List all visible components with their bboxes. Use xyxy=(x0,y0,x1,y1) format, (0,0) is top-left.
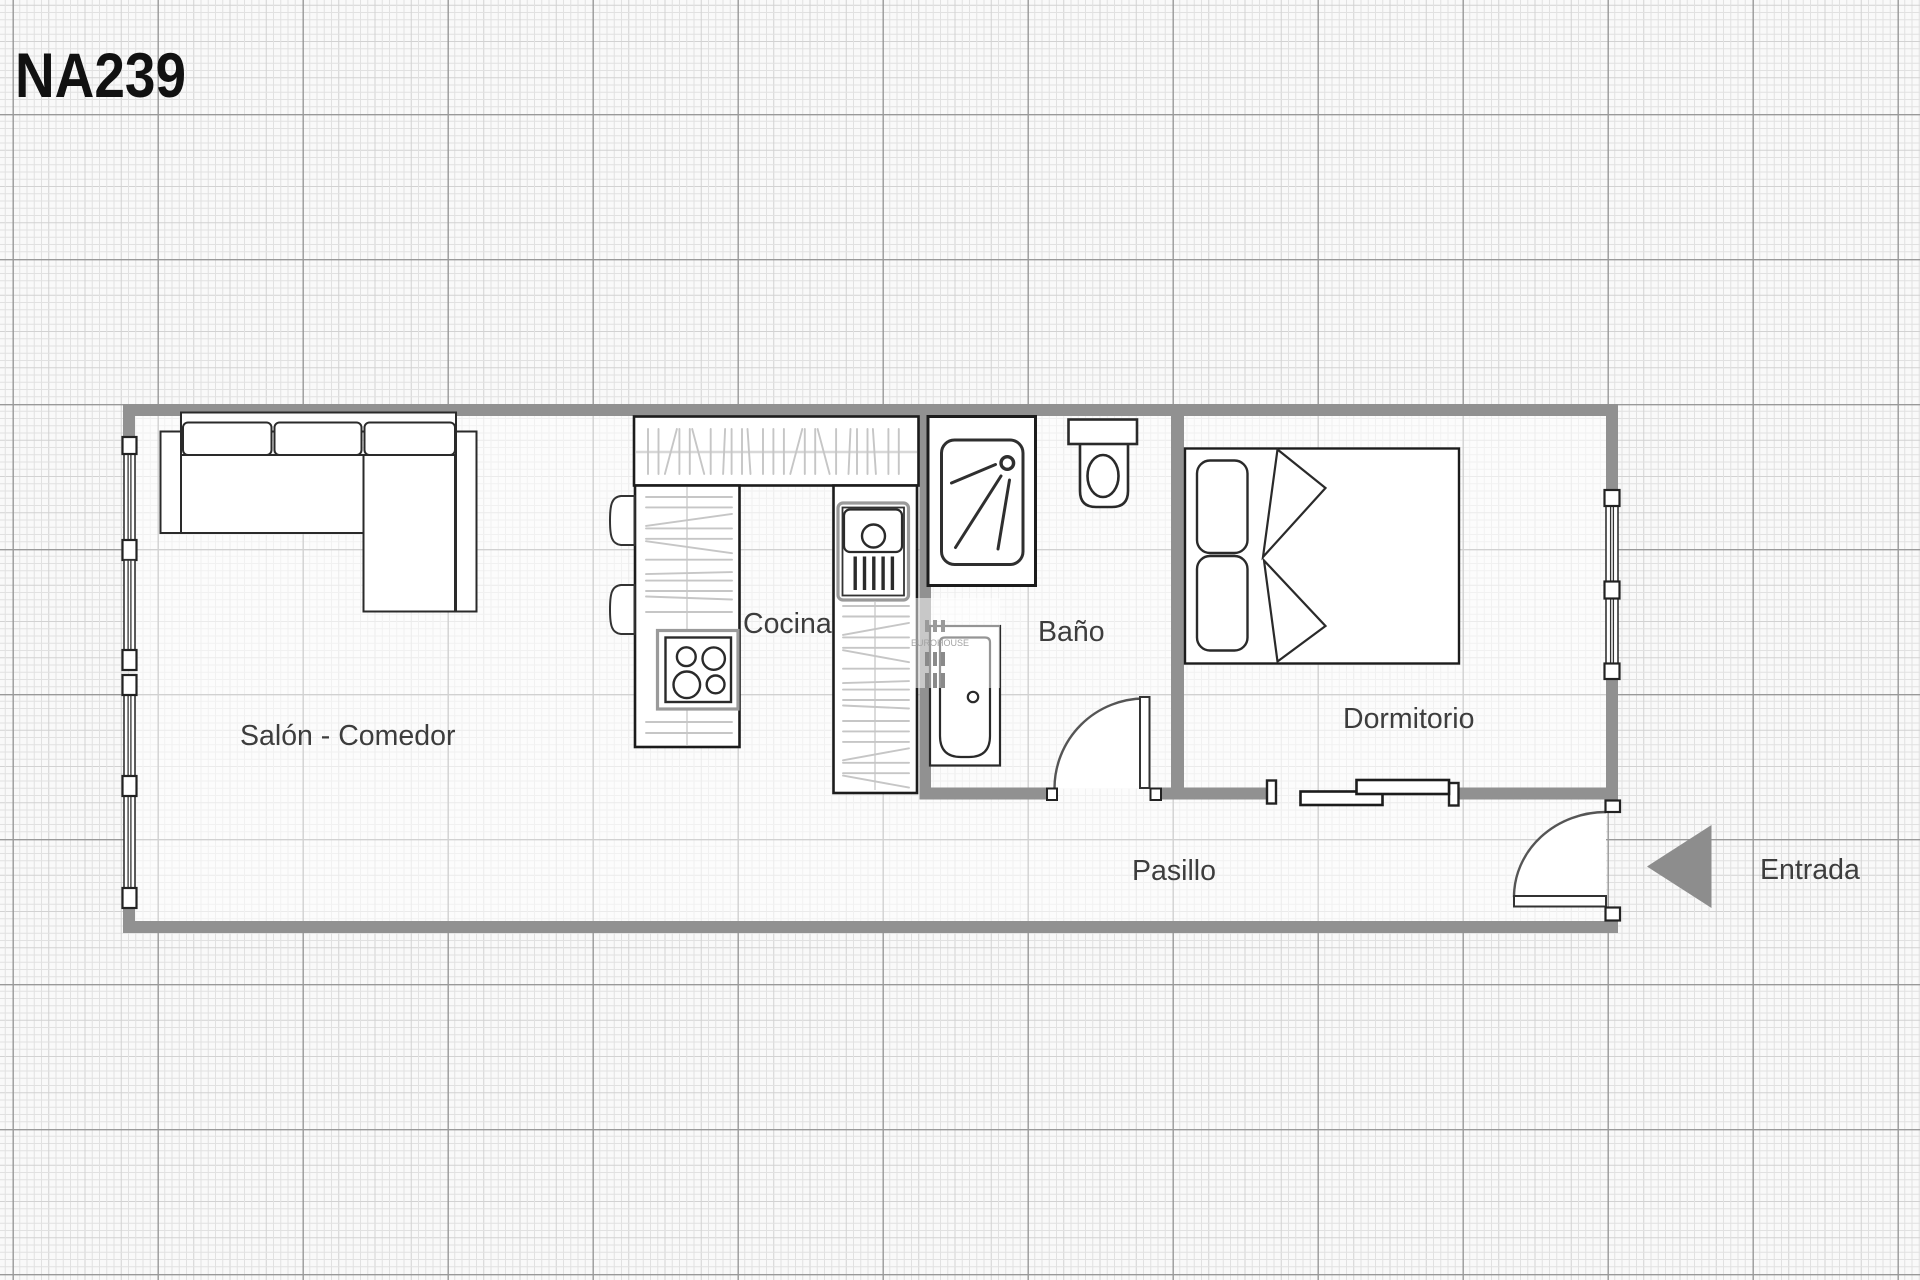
svg-text:Baño: Baño xyxy=(1038,616,1105,648)
svg-text:Dormitorio: Dormitorio xyxy=(1343,703,1474,735)
svg-text:Pasillo: Pasillo xyxy=(1132,855,1216,887)
svg-text:Entrada: Entrada xyxy=(1760,854,1860,886)
svg-text:Cocina: Cocina xyxy=(743,608,832,640)
svg-text:Salón - Comedor: Salón - Comedor xyxy=(240,720,456,752)
svg-text:EUROHOUSE: EUROHOUSE xyxy=(911,638,969,648)
svg-text:NA239: NA239 xyxy=(15,41,186,111)
